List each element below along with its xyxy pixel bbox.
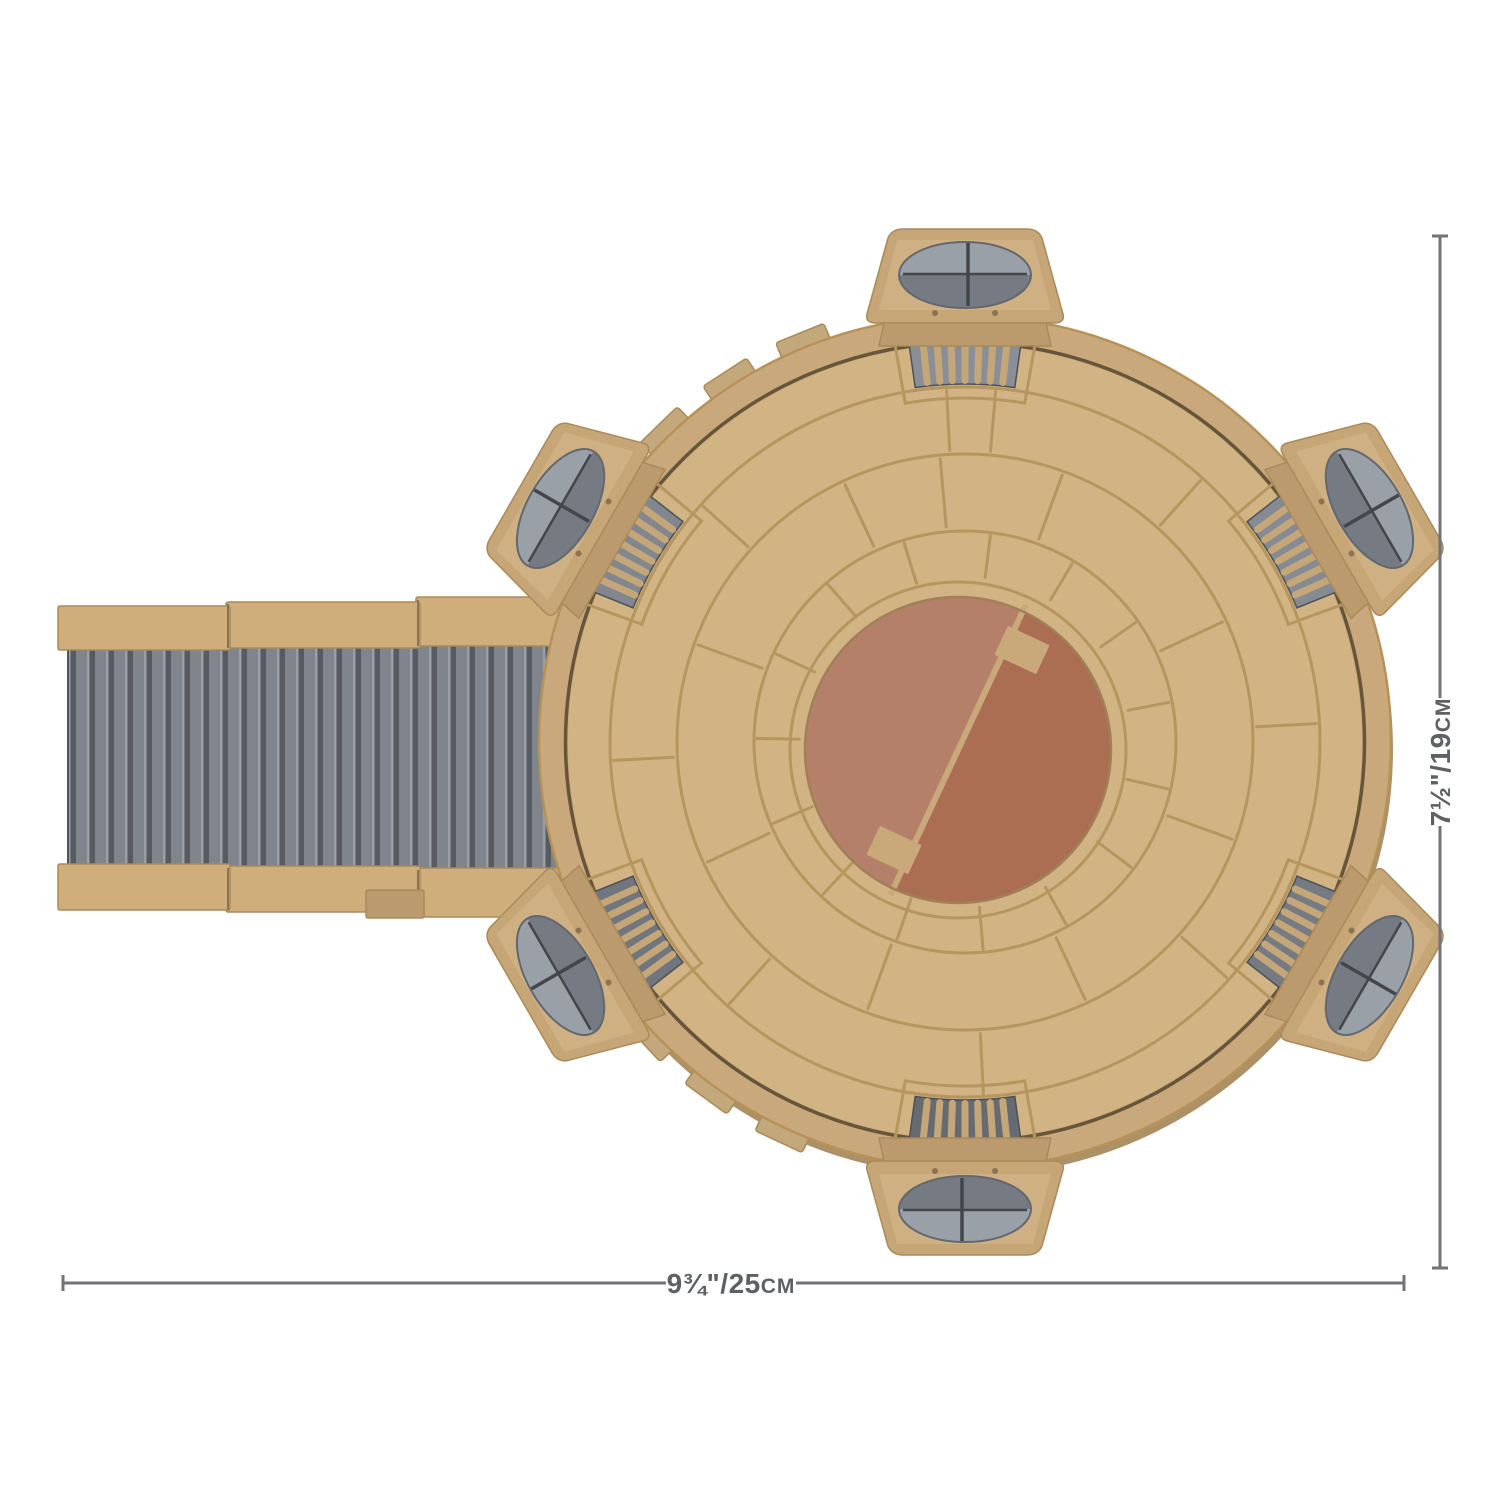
- landing-platform: [472, 229, 1459, 1255]
- height-dimension: 7½"/19cm: [1425, 235, 1456, 1269]
- ramp-under-tab: [366, 890, 424, 918]
- width-dimension-label: 9¾"/25cm: [667, 1268, 796, 1299]
- height-dimension-label: 7½"/19cm: [1425, 698, 1456, 827]
- perimeter-pod: [867, 1138, 1064, 1255]
- perimeter-pod: [867, 229, 1064, 346]
- product-photo: 9¾"/25cm 7½"/19cm: [0, 0, 1500, 1500]
- ramp-rail-top: [58, 597, 598, 650]
- product-photo-stage: 9¾"/25cm 7½"/19cm: [0, 0, 1500, 1500]
- ramp-deck: [68, 641, 580, 871]
- width-dimension: 9¾"/25cm: [62, 1268, 1405, 1299]
